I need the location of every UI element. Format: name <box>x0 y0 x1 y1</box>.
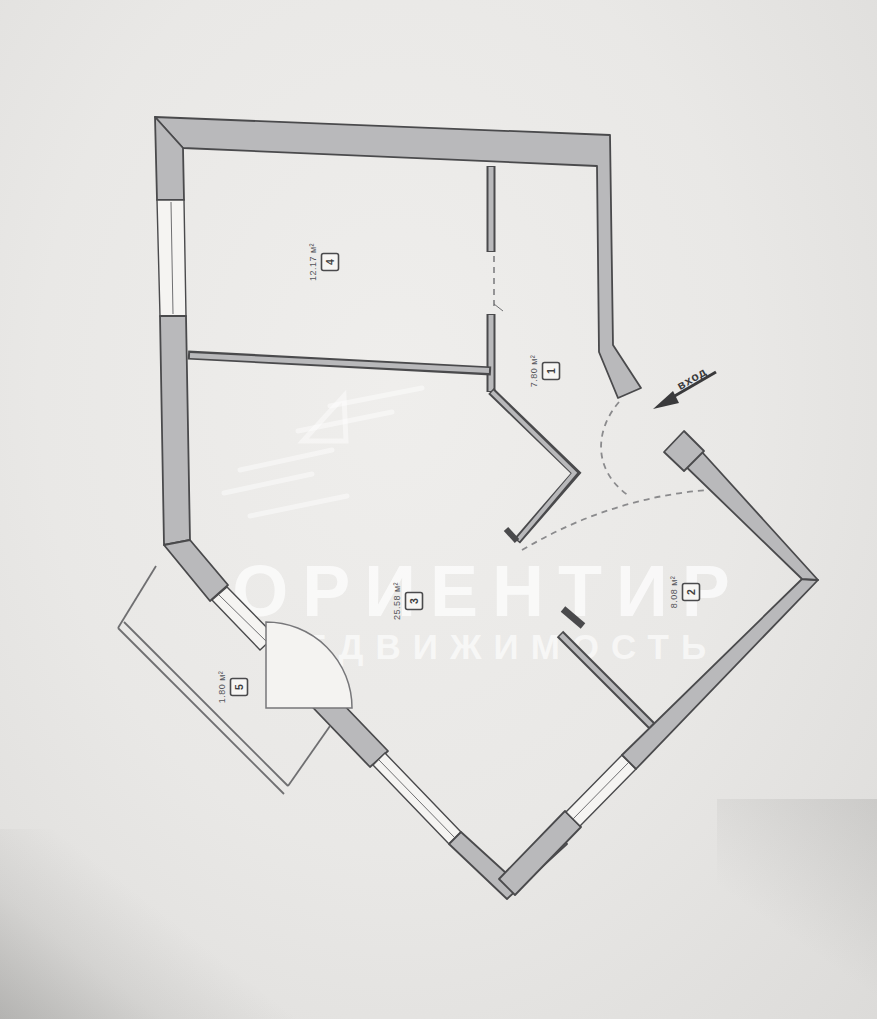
room-5-number: 5 <box>233 684 245 690</box>
room-3-number: 3 <box>408 598 420 604</box>
corridor-wall-hook <box>506 529 517 541</box>
watermark: ОРИЕНТИР НЕДВИЖИМОСТЬ <box>224 388 744 666</box>
room-1-area: 7.80 м² <box>529 355 539 388</box>
room-3-area: 25.58 м² <box>392 582 402 620</box>
entrance-arrow-head <box>653 391 679 409</box>
photo-background: ОРИЕНТИР НЕДВИЖИМОСТЬ <box>0 0 877 1019</box>
room-2-number: 2 <box>685 589 697 595</box>
entrance-arrow: вход <box>653 364 716 409</box>
room-label-4: 4 12.17 м² <box>308 243 339 281</box>
room-5-area: 1.80 м² <box>217 671 227 704</box>
room-2-area: 8.08 м² <box>669 576 679 609</box>
watermark-swoosh-logo <box>224 388 422 516</box>
room-1-number: 1 <box>545 368 557 374</box>
entrance-door-arc <box>601 402 629 496</box>
corridor-wall <box>491 391 576 541</box>
wall-se-lower <box>499 811 581 895</box>
watermark-line1: ОРИЕНТИР <box>232 551 744 631</box>
entrance-label: вход <box>674 364 709 392</box>
room-4-number: 4 <box>324 259 336 265</box>
wall-bend-sw <box>164 540 228 601</box>
room-4-area: 12.17 м² <box>308 243 318 281</box>
wall-left-lower <box>160 316 190 545</box>
room-label-5: 5 1.80 м² <box>217 671 248 704</box>
floor-plan: ОРИЕНТИР НЕДВИЖИМОСТЬ <box>0 0 877 1019</box>
room-label-1: 1 7.80 м² <box>529 355 560 388</box>
